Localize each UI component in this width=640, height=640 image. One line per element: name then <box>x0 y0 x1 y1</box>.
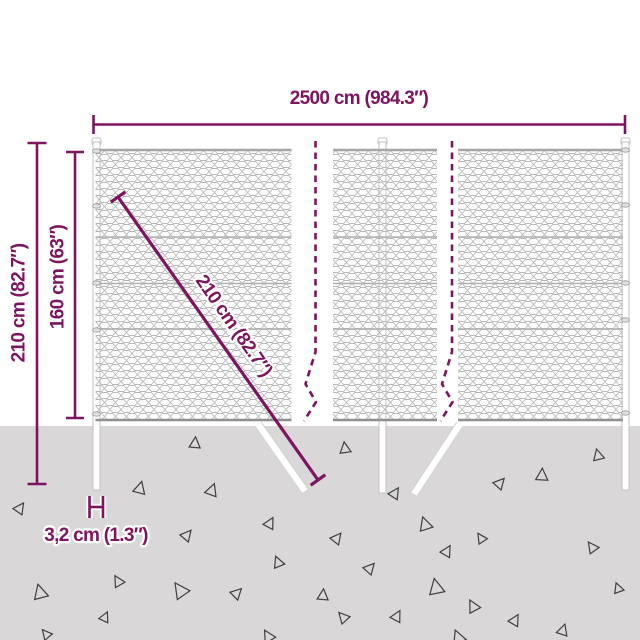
mesh-panel-3 <box>458 149 623 421</box>
dimension-mesh-height: 160 cm (63″) <box>48 152 85 418</box>
mesh-height-label: 160 cm (63″) <box>48 225 69 330</box>
break-line-2 <box>441 141 453 421</box>
fence-mesh <box>96 149 624 421</box>
width-label: 2500 cm (984.3″) <box>290 88 429 109</box>
dimension-width: 2500 cm (984.3″) <box>94 88 626 134</box>
fence-dimension-diagram: 2500 cm (984.3″) 210 cm (82.7″) 160 cm (… <box>0 0 640 640</box>
total-height-label: 210 cm (82.7″) <box>9 243 30 362</box>
mesh-panel-2 <box>333 149 437 421</box>
diagram-canvas: 2500 cm (984.3″) 210 cm (82.7″) 160 cm (… <box>0 0 640 640</box>
post-right <box>622 142 629 490</box>
break-line-1 <box>304 141 316 421</box>
post-diameter-label: 3,2 cm (1.3″) <box>44 525 148 546</box>
